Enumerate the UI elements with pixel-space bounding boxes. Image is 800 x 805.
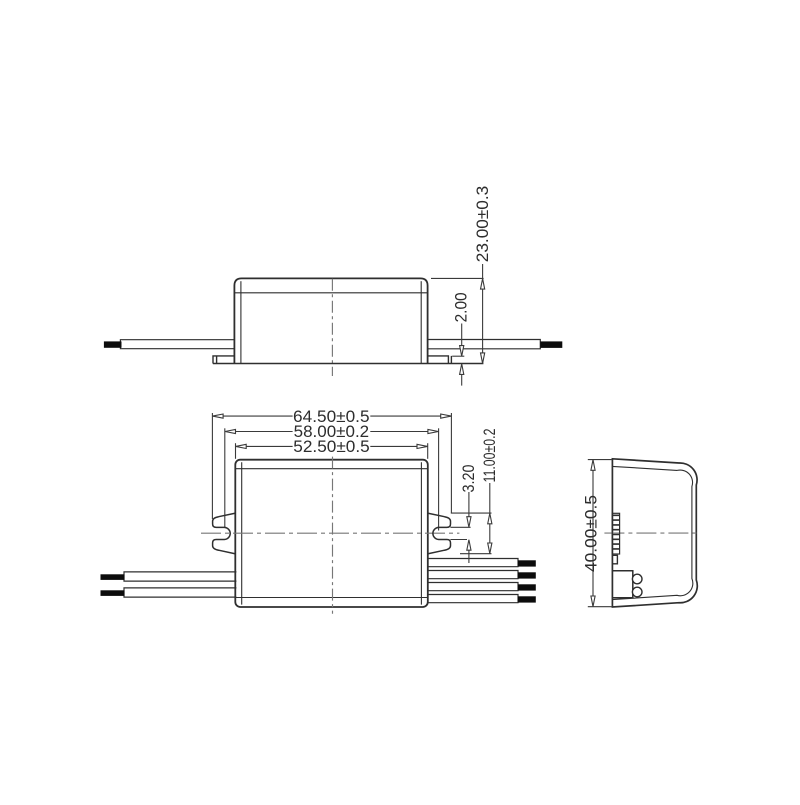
svg-text:3.20: 3.20 (460, 465, 478, 493)
svg-text:11.00±0.2: 11.00±0.2 (481, 429, 499, 483)
svg-text:52.50±0.5: 52.50±0.5 (293, 438, 370, 456)
svg-text:23.00±0.3: 23.00±0.3 (474, 186, 492, 263)
svg-text:40.00±0.5: 40.00±0.5 (583, 495, 601, 572)
svg-text:2.00: 2.00 (453, 292, 471, 322)
